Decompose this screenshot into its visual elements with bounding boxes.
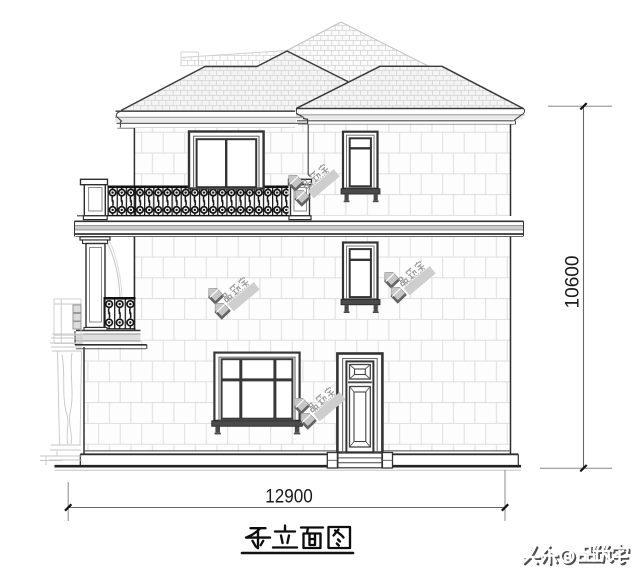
svg-text:12900: 12900 [265, 486, 313, 508]
svg-text:10600: 10600 [561, 255, 583, 308]
